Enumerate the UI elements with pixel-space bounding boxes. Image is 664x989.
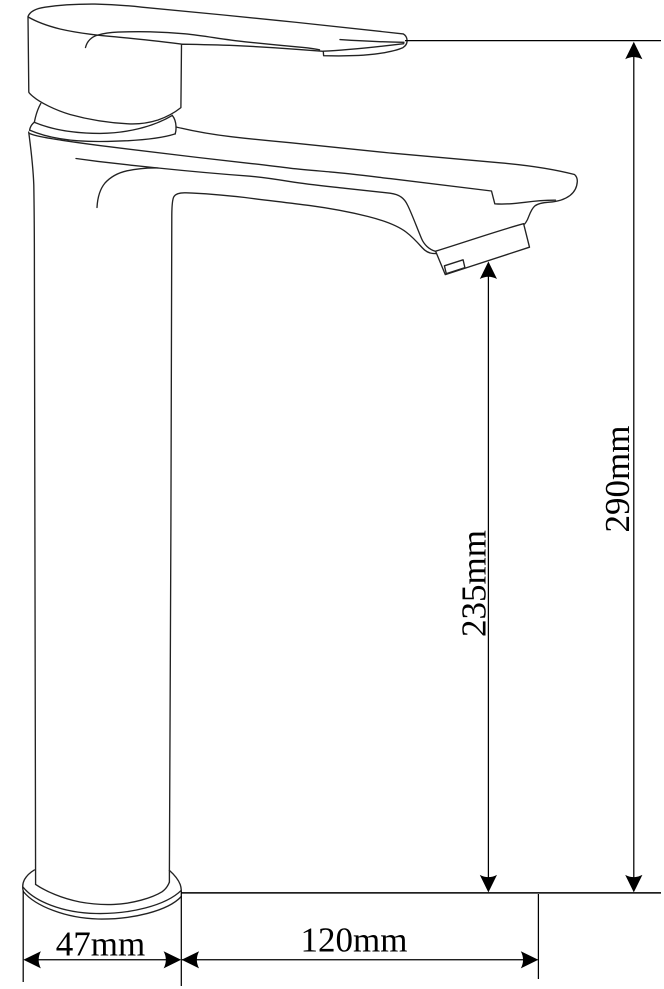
svg-text:120mm: 120mm bbox=[301, 921, 408, 960]
svg-text:235mm: 235mm bbox=[455, 530, 494, 637]
svg-text:47mm: 47mm bbox=[56, 925, 145, 964]
svg-text:290mm: 290mm bbox=[598, 426, 637, 533]
